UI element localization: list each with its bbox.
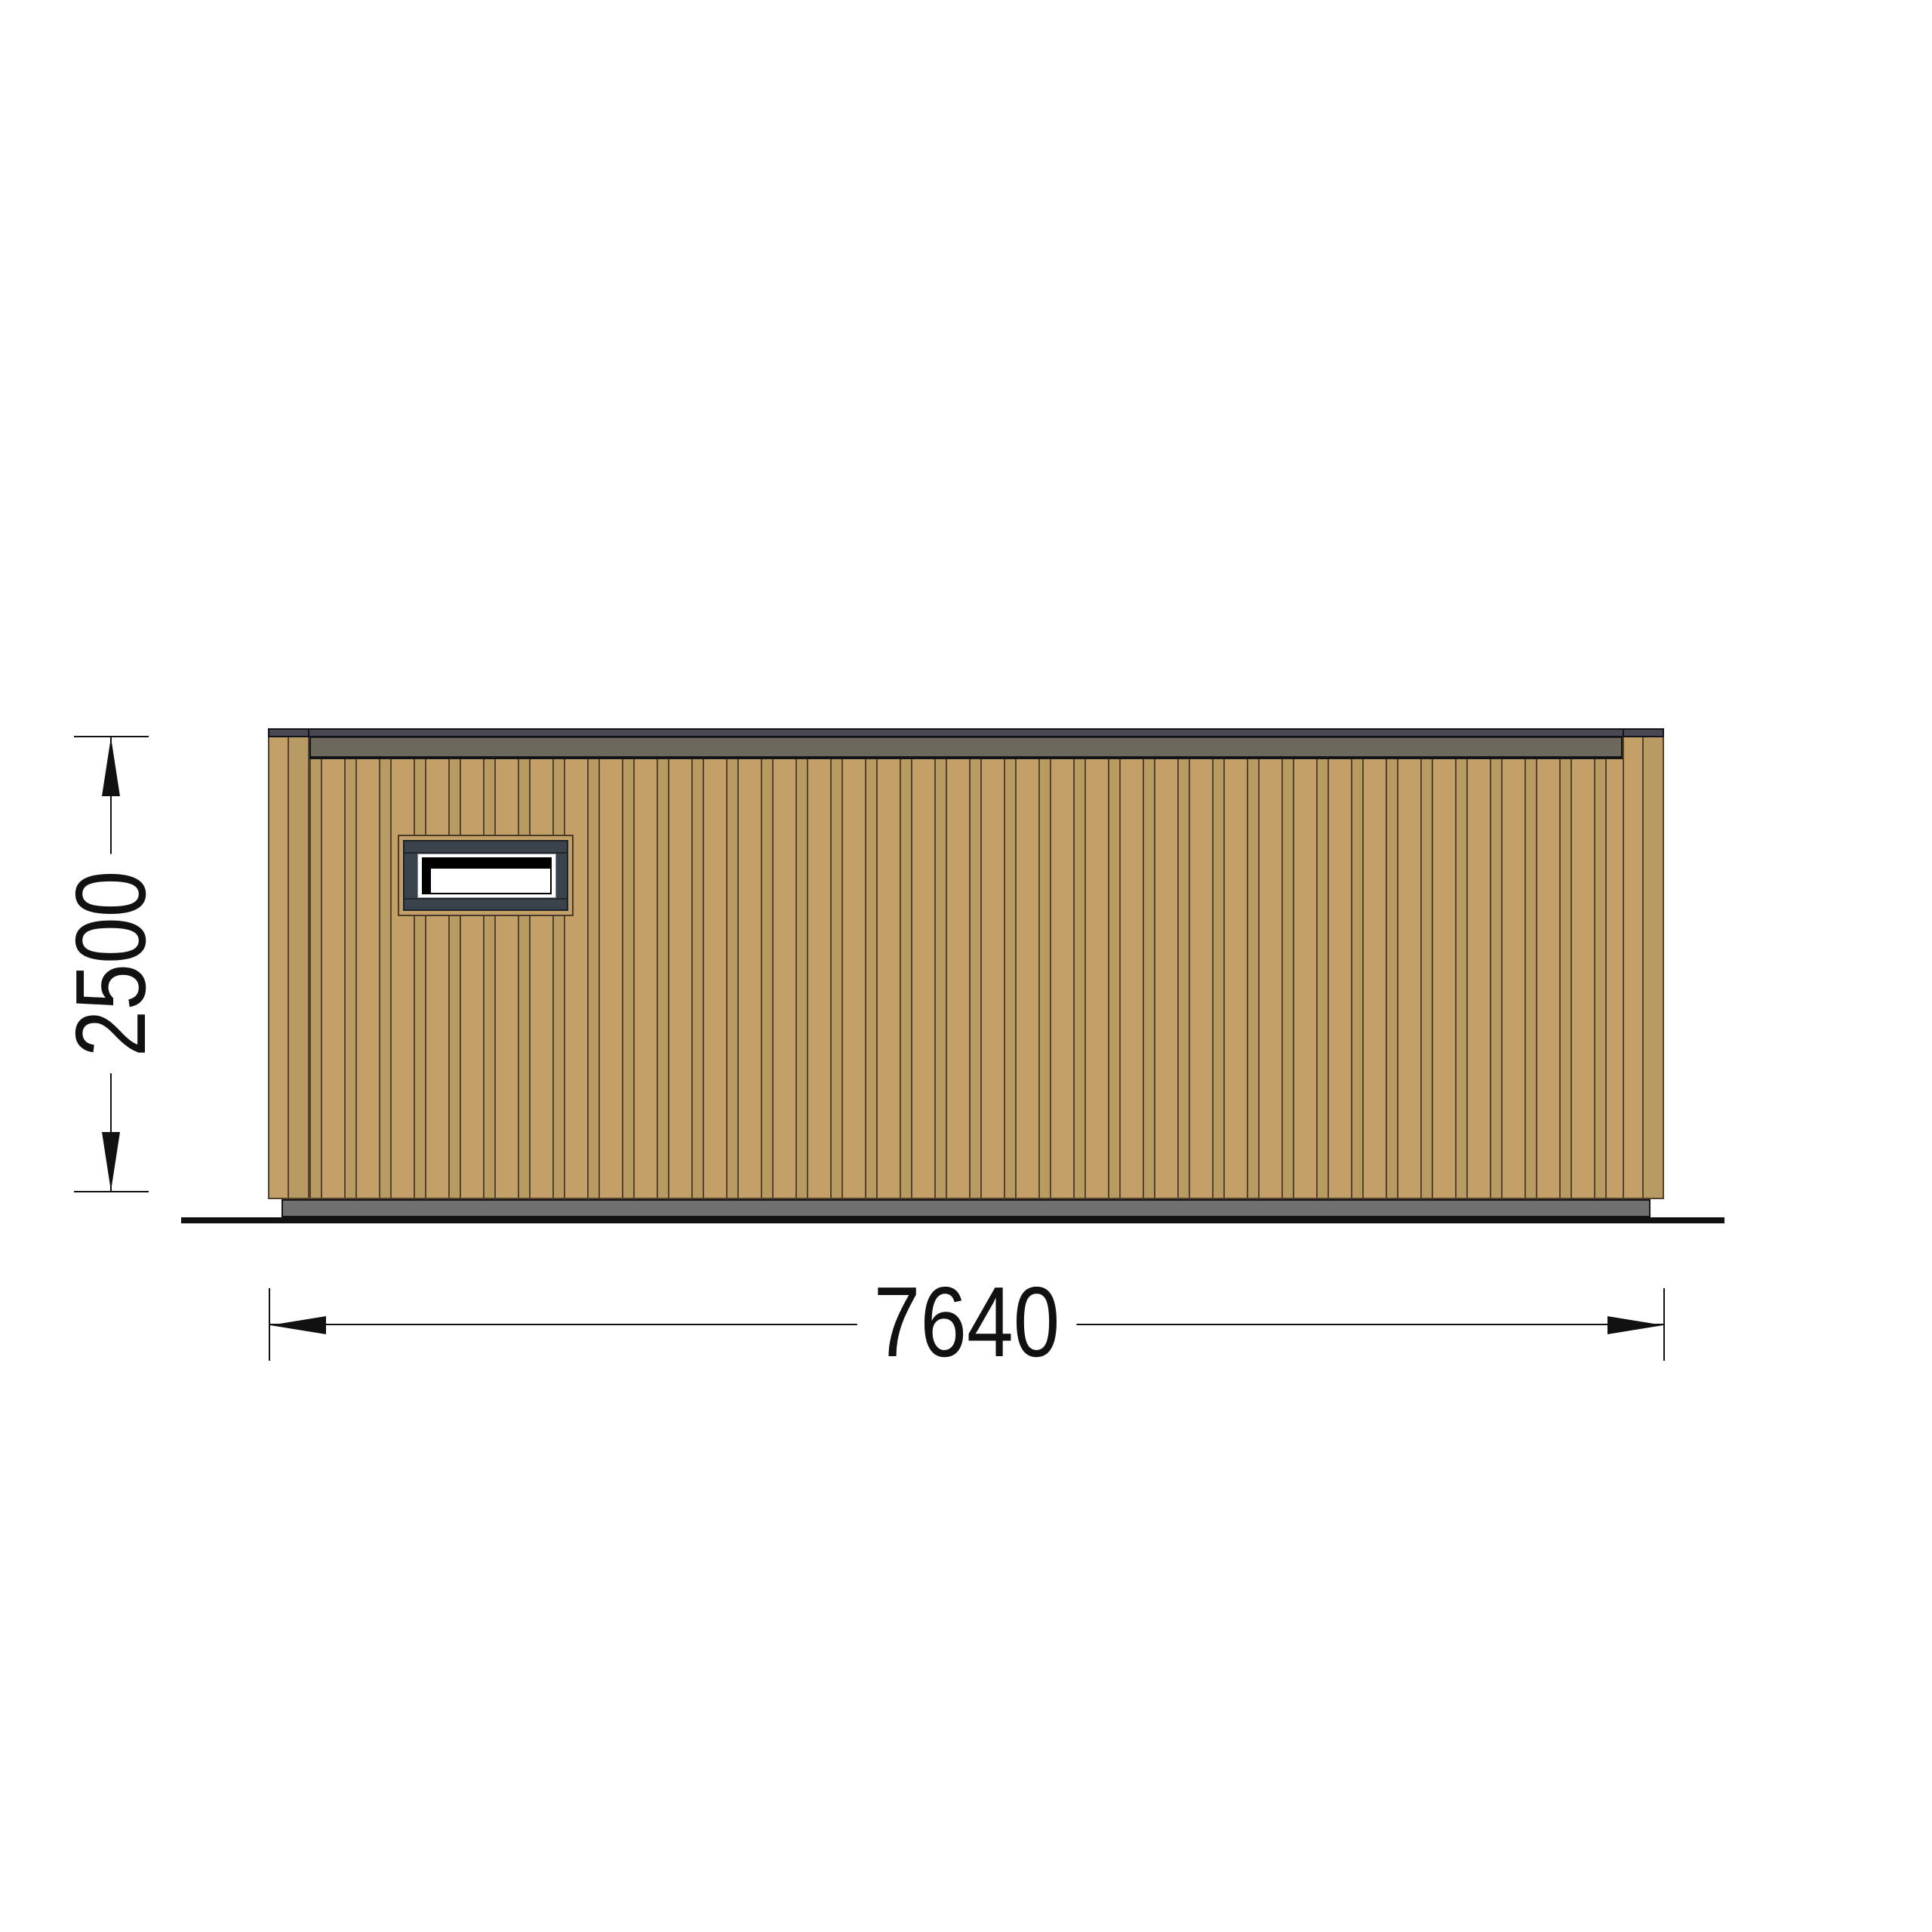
height-dim-label: 2500: [61, 854, 161, 1073]
ground-line: [181, 1217, 1724, 1223]
corner-board-right: [1623, 737, 1664, 1199]
roof-edge-strip: [268, 728, 1664, 737]
height-dim-arrow-down: [102, 1132, 120, 1191]
window-pane: [431, 869, 550, 893]
width-dim-label: 7640: [857, 1272, 1076, 1372]
width-dim-arrow-right: [1607, 1316, 1663, 1334]
width-dim-arrow-left: [270, 1316, 326, 1334]
corner-board-left: [268, 737, 309, 1199]
height-dim-arrow-up: [102, 737, 120, 796]
window-frame-seam-bottom: [403, 898, 568, 900]
foundation-base: [281, 1199, 1651, 1217]
roof-edge-seam-right: [1623, 728, 1624, 737]
elevation-drawing: 2500 7640: [0, 0, 1932, 1932]
roof-edge-seam-left: [308, 728, 309, 737]
height-dim-tick-bottom: [74, 1191, 149, 1192]
wall-vertical-siding: [309, 759, 1623, 1199]
roof-fascia-band: [309, 737, 1623, 759]
